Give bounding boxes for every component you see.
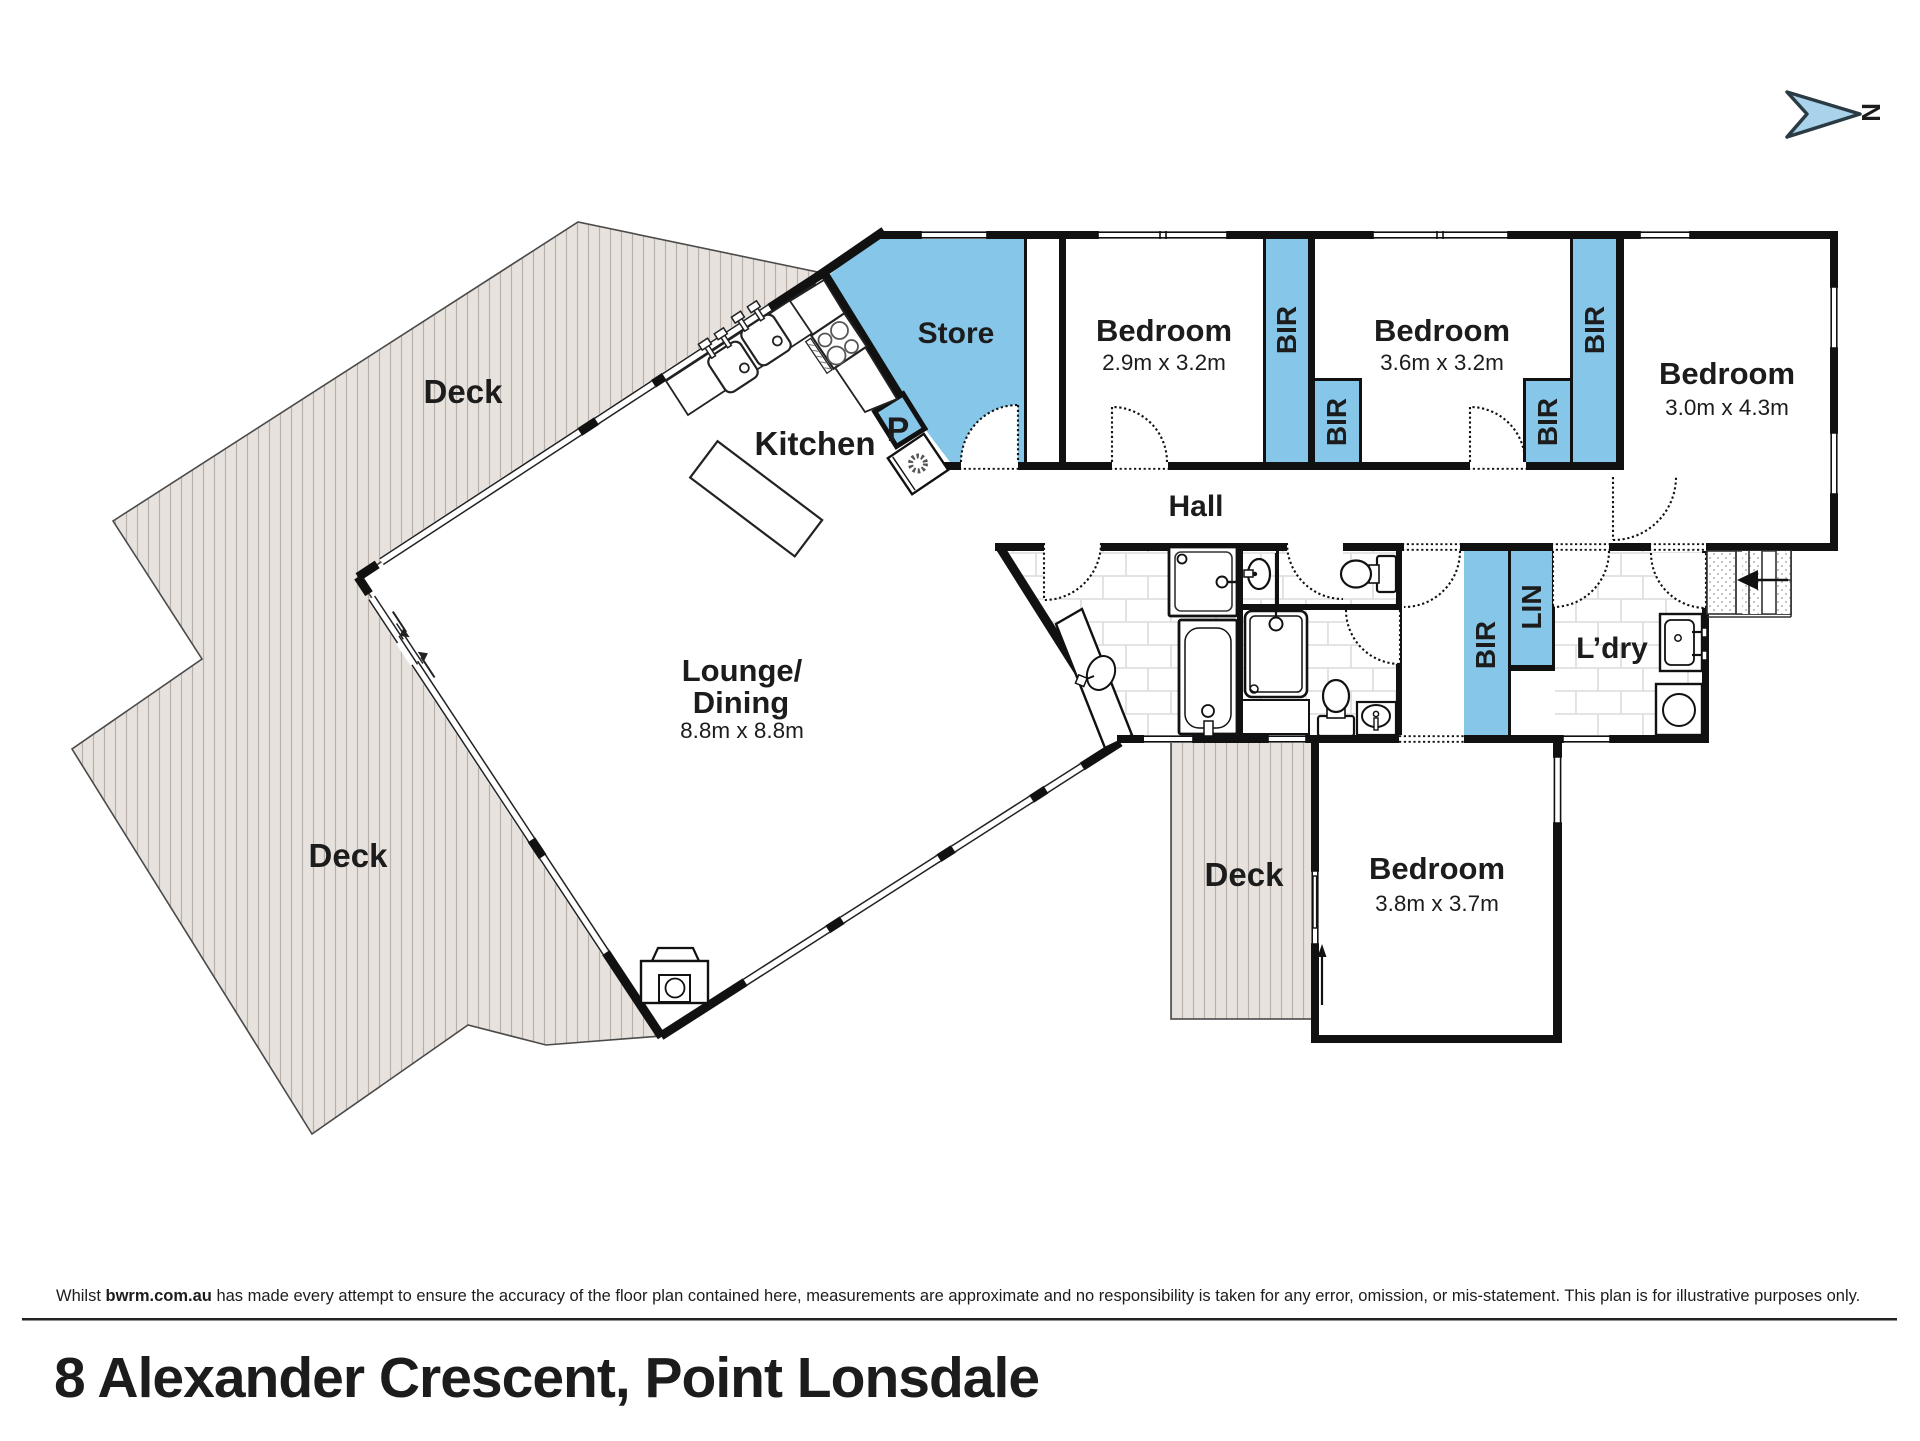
svg-text:Bedroom: Bedroom — [1096, 313, 1232, 348]
svg-text:LIN: LIN — [1516, 584, 1547, 629]
svg-text:Bedroom: Bedroom — [1374, 313, 1510, 348]
svg-text:N: N — [1856, 103, 1886, 122]
svg-text:BIR: BIR — [1579, 306, 1610, 354]
svg-text:Deck: Deck — [309, 837, 389, 874]
svg-text:3.8m x 3.7m: 3.8m x 3.7m — [1375, 891, 1499, 916]
svg-text:BIR: BIR — [1321, 398, 1352, 446]
svg-text:Deck: Deck — [1205, 856, 1285, 893]
svg-text:BIR: BIR — [1532, 398, 1563, 446]
svg-text:L’dry: L’dry — [1576, 632, 1648, 665]
svg-text:8 Alexander Crescent, Point Lo: 8 Alexander Crescent, Point Lonsdale — [54, 1346, 1039, 1410]
svg-text:3.0m x 4.3m: 3.0m x 4.3m — [1665, 395, 1789, 420]
svg-text:Kitchen: Kitchen — [754, 425, 875, 462]
svg-text:Bedroom: Bedroom — [1369, 851, 1505, 886]
svg-text:Dining: Dining — [693, 685, 789, 720]
svg-text:3.6m x 3.2m: 3.6m x 3.2m — [1380, 350, 1504, 375]
svg-text:Deck: Deck — [424, 373, 504, 410]
svg-text:P: P — [887, 411, 910, 449]
svg-text:Store: Store — [918, 317, 995, 350]
svg-text:BIR: BIR — [1271, 306, 1302, 354]
svg-text:Whilst bwrm.com.au has made ev: Whilst bwrm.com.au has made every attemp… — [56, 1287, 1860, 1305]
svg-text:8.8m x 8.8m: 8.8m x 8.8m — [680, 718, 804, 743]
svg-text:Bedroom: Bedroom — [1659, 356, 1795, 391]
svg-text:Lounge/: Lounge/ — [682, 653, 803, 688]
svg-text:2.9m x 3.2m: 2.9m x 3.2m — [1102, 350, 1226, 375]
svg-text:BIR: BIR — [1470, 621, 1501, 669]
svg-text:Hall: Hall — [1168, 490, 1223, 523]
